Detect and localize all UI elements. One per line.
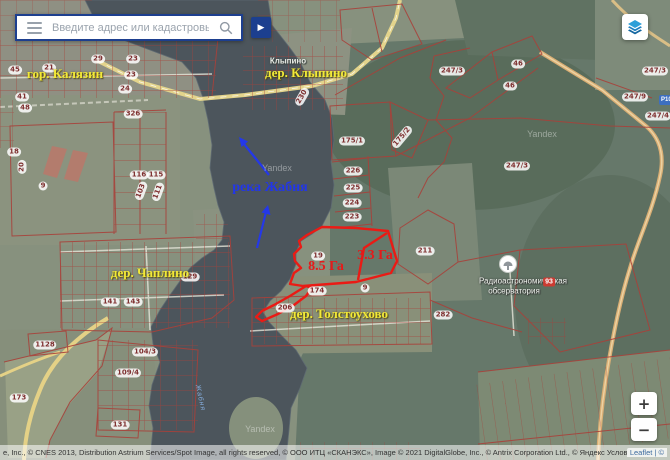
parcel-number-label: 48 <box>18 104 32 113</box>
leaflet-link[interactable]: Leaflet | © <box>627 448 667 457</box>
zoom-in-button[interactable]: + <box>631 392 657 415</box>
parcel-number-label: 9 <box>39 182 48 191</box>
annotation-label: 8.5 Га <box>308 259 344 275</box>
parcel-number-label: 24 <box>118 85 132 94</box>
basemap-label: Yandex <box>245 424 275 434</box>
play-icon: ▶ <box>258 22 265 32</box>
search-submit-button[interactable]: ▶ <box>251 17 271 38</box>
parcel-number-label: 1128 <box>33 341 56 350</box>
basemap-label: Yandex <box>262 163 292 173</box>
village-label: дер. Чаплино <box>111 265 189 281</box>
parcel-number-label: 224 <box>343 199 362 208</box>
zoom-out-button[interactable]: − <box>631 418 657 441</box>
parcel-number-label: 29 <box>91 55 105 64</box>
parcel-number-label: 109/4 <box>115 369 141 378</box>
parcel-number-label: 247/3 <box>642 67 668 76</box>
parcel-number-label: 9 <box>361 284 370 293</box>
annotation-label: река Жабня <box>232 180 308 196</box>
village-label: гор. Калязин <box>27 66 103 82</box>
annotation-label: 3.3 Га <box>357 248 393 264</box>
parcel-number-label: 223 <box>343 213 362 222</box>
parcel-number-label: 211 <box>416 247 435 256</box>
parcel-number-label: 104/3 <box>132 348 158 357</box>
zoom-control: + − <box>631 392 657 444</box>
search-icon[interactable] <box>219 21 233 35</box>
parcel-number-label: 116 <box>130 171 149 180</box>
parcel-number-label: 174 <box>308 287 327 296</box>
parcel-number-label: 46 <box>503 82 517 91</box>
parcel-number-label: 131 <box>111 421 130 430</box>
parcel-number-label: 247/3 <box>504 162 530 171</box>
parcel-number-label: 20 <box>18 160 27 174</box>
parcel-number-label: 225 <box>344 184 363 193</box>
attribution-text: е, Inc., © CNES 2013, Distribution Astri… <box>3 448 627 457</box>
parcel-number-label: 143 <box>124 298 143 307</box>
search-bar <box>15 14 243 41</box>
menu-icon[interactable] <box>27 19 42 37</box>
road-shield: Р104 <box>659 95 670 105</box>
search-input[interactable] <box>50 21 211 35</box>
parcel-number-label: 45 <box>8 66 22 75</box>
layers-icon <box>626 18 644 36</box>
parcel-number-label: 282 <box>434 311 453 320</box>
observatory-icon <box>500 256 517 273</box>
parcel-number-label: 115 <box>147 171 166 180</box>
layers-button[interactable] <box>622 14 648 40</box>
parcel-number-label: 18 <box>7 148 21 157</box>
parcel-number-label: 175/1 <box>339 137 365 146</box>
parcel-number-label: 23 <box>126 55 140 64</box>
parcel-number-label: 23 <box>124 71 138 80</box>
parcel-number-label: 41 <box>15 93 29 102</box>
parcel-number-label: 326 <box>124 110 143 119</box>
village-label: дер. Толстоухово <box>290 306 388 322</box>
parcel-number-label: 173 <box>10 394 29 403</box>
parcel-number-label: 247/3 <box>439 67 465 76</box>
parcel-number-label: 141 <box>101 298 120 307</box>
basemap-label: обсерватория <box>488 287 540 296</box>
poi-badge: 93 <box>543 278 555 287</box>
attribution-bar: е, Inc., © CNES 2013, Distribution Astri… <box>0 445 670 460</box>
parcel-number-label: 247/9 <box>622 93 648 102</box>
parcel-number-label: 226 <box>344 167 363 176</box>
parcel-number-label: 46 <box>511 60 525 69</box>
parcel-number-label: 247/4 <box>645 112 670 121</box>
basemap-label: Yandex <box>527 129 557 139</box>
map-application: 4521292323244148326182091161151031112301… <box>0 0 670 460</box>
village-label: дер. Клыпино <box>265 65 347 81</box>
